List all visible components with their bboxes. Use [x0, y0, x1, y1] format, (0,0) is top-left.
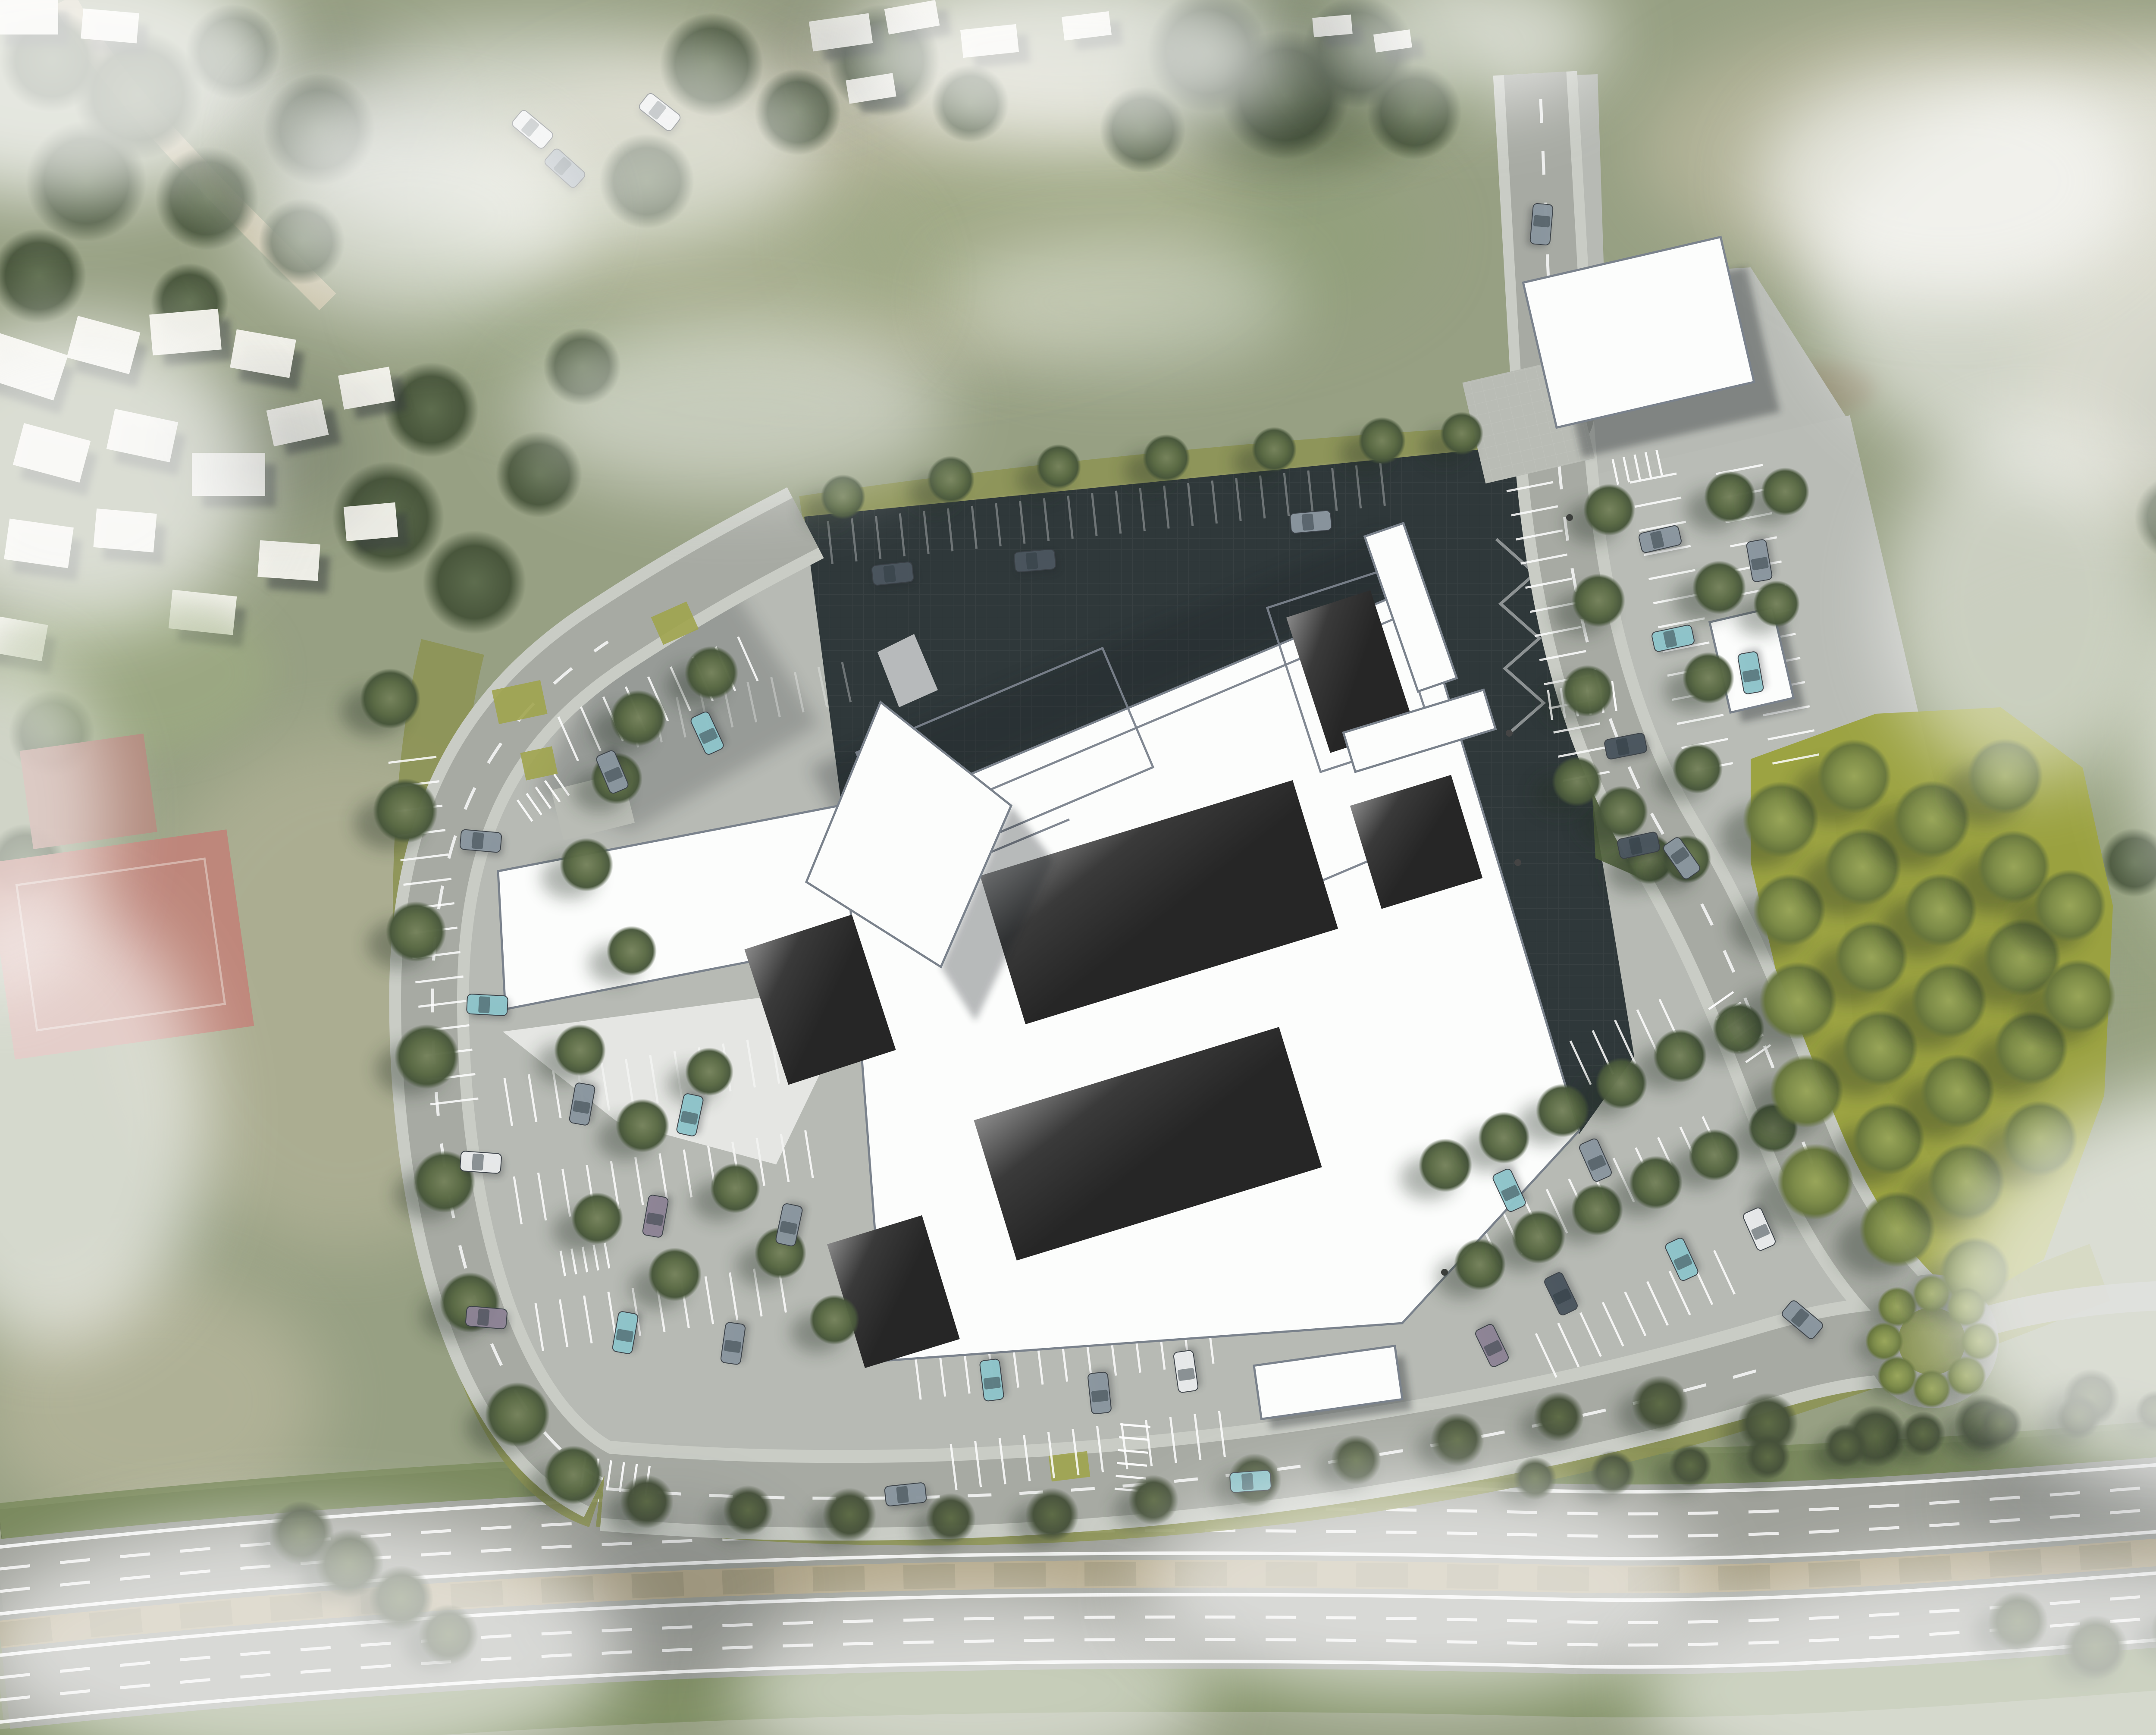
site-plan-page: N NE E SE S SO O NO [0, 0, 2156, 1735]
car [884, 1482, 930, 1510]
car [1014, 549, 1059, 576]
site-plan-canvas: N NE E SE S SO O NO [0, 0, 2156, 1735]
fog-patch [1755, 60, 2143, 302]
car [1230, 1470, 1275, 1496]
car [459, 829, 504, 857]
car [1290, 510, 1335, 537]
fog-patch [237, 108, 582, 323]
fog-patch [517, 323, 949, 496]
car [1087, 1369, 1115, 1414]
car [871, 562, 917, 589]
fog-patch [949, 233, 1294, 371]
car [466, 994, 511, 1020]
background-tree-clump [423, 530, 526, 634]
fog-patch [1143, 1475, 1703, 1699]
car [1526, 203, 1553, 248]
pedestrian [1514, 859, 1521, 866]
pedestrian [1506, 730, 1513, 737]
house-roof [257, 540, 330, 593]
fog-patch [1884, 423, 2156, 785]
car [460, 1151, 505, 1177]
car [465, 1306, 510, 1333]
